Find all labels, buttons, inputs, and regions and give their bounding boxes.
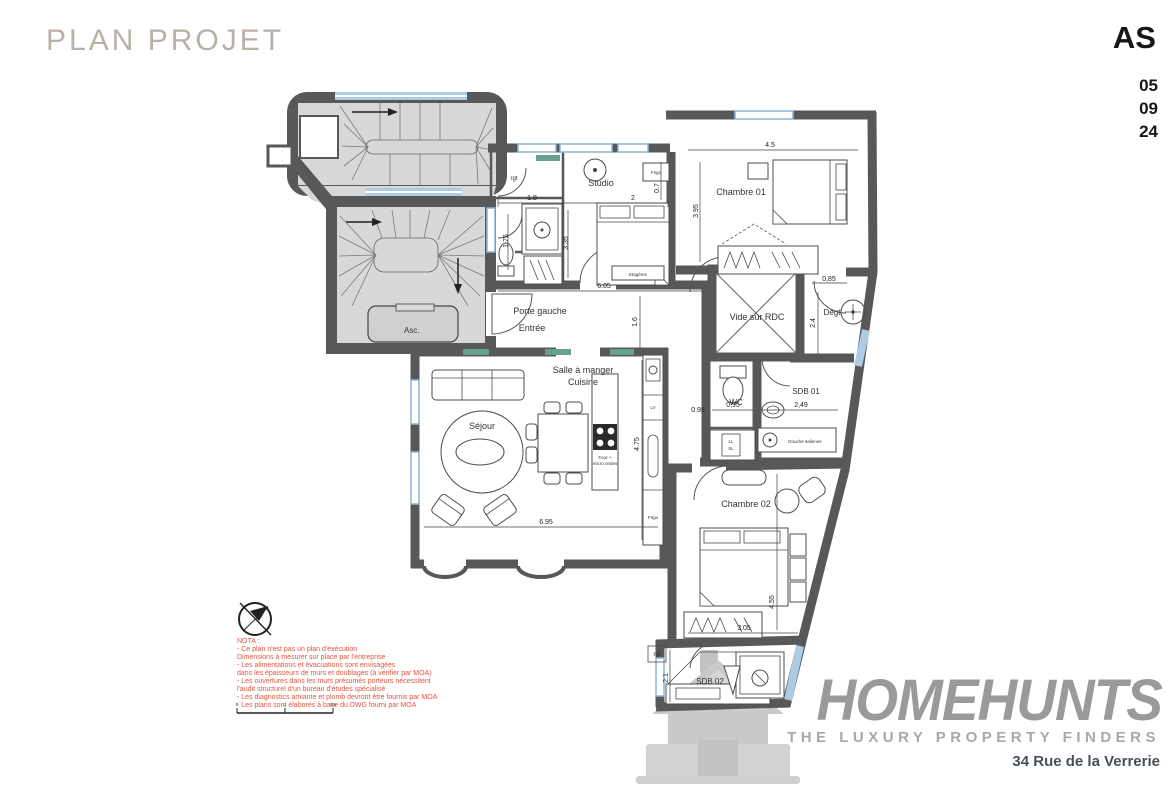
chambre01-furniture [718, 160, 847, 274]
studio-furniture [498, 159, 669, 285]
dim-studio-h: 3.35 [563, 236, 570, 250]
chambre01-label: Chambre 01 [716, 187, 766, 197]
sdb01-label: SDB 01 [792, 387, 820, 396]
dim-frigo: 0.7 [654, 183, 661, 193]
dim-studio-a: 1.8 [527, 195, 537, 202]
four-label-2: micro ondes [593, 461, 618, 466]
nota-line: - Les alimentations et évacuations sont … [237, 662, 437, 670]
entree-label: Entrée [519, 323, 546, 333]
vide-rdc-label: Vide sur RDC [730, 312, 785, 322]
entry-hall [498, 291, 702, 348]
nota-line: NOTA : [237, 638, 437, 646]
dim-ch02-w: 3.05 [737, 625, 751, 632]
rgt-studio-label: rgt [510, 176, 517, 182]
vent [610, 349, 634, 355]
sejour-label: Séjour [469, 421, 495, 431]
dim-hall-h: 1.6 [632, 317, 639, 327]
douche-label: Douche italienne [788, 439, 822, 444]
degt-label: Dégt [824, 308, 842, 317]
nota-line: Dimensions à mesurer sur place par l'ent… [237, 654, 437, 662]
degt-symbols [841, 300, 865, 324]
staircase-block: Asc. [268, 92, 507, 354]
ll-label: LL [728, 439, 734, 444]
frigo-studio-label: Frigo [651, 170, 662, 175]
lv-label: LV [650, 405, 655, 410]
nota-line: - Les plans sont élaborés à base du DWG … [237, 702, 437, 710]
etageres-label: Etagères [629, 272, 648, 277]
dim-hall-w: 6.05 [597, 283, 611, 290]
porte-gauche-label: Porte gauche [513, 306, 567, 316]
dim-ch01-w: 4.5 [765, 142, 775, 149]
logo-tagline: THE LUXURY PROPERTY FINDERS [787, 729, 1160, 746]
dim-bain-h: 1.75 [503, 234, 510, 248]
living-furniture [430, 355, 663, 545]
nota-line: - Les diagnostics amiante et plomb devro… [237, 694, 437, 702]
nota-line: - Les ouvertures dans les murs présumés … [237, 678, 437, 686]
studio-label: Studio [588, 178, 614, 188]
dim-degt-h: 2.4 [810, 318, 817, 328]
dim-niche-w: 0.95 [691, 407, 705, 414]
vent [463, 349, 489, 355]
cuisine-label: Cuisine [568, 377, 598, 387]
salle-a-manger-label: Salle à manger [553, 365, 614, 375]
elevator-label: Asc. [404, 326, 420, 335]
homehunts-logo-text: HOMEHUNTS [817, 666, 1162, 734]
logo-address: 34 Rue de la Verrerie [1012, 753, 1160, 770]
dim-wc-w: 0,95 [726, 402, 740, 409]
nota-line: - Ce plan n'est pas un plan d'exécution [237, 646, 437, 654]
dim-degt-w: 0,85 [822, 276, 836, 283]
four-label-1: Four + [598, 455, 612, 460]
nota-line: l'audit structurel d'un bureau d'études … [237, 686, 437, 694]
dim-ch02-h: 4.55 [769, 595, 776, 609]
frigo-cuisine-label: Frigo [648, 515, 659, 520]
dim-sdb01-w: 2,49 [794, 402, 808, 409]
vent [536, 155, 560, 161]
vent [545, 349, 571, 355]
sl-label: SL [728, 446, 734, 451]
chambre02-label: Chambre 02 [721, 499, 771, 509]
nota-line: dans les épaisseurs de murs et doublages… [237, 670, 437, 678]
compass-icon [239, 603, 271, 635]
dim-ch01-h: 3.95 [693, 204, 700, 218]
nota-block: NOTA : - Ce plan n'est pas un plan d'exé… [237, 638, 437, 710]
rgt-sdb02-label: rgt [653, 652, 660, 658]
dim-sejour-w: 6.95 [539, 519, 553, 526]
sdb02-label: SDB 02 [696, 677, 724, 686]
dim-sdb02-h: 2.1 [663, 673, 670, 683]
dim-studio-b: 2 [631, 195, 635, 202]
dim-sejour-h: 4.75 [634, 437, 641, 451]
elevator: Asc. [368, 304, 458, 342]
